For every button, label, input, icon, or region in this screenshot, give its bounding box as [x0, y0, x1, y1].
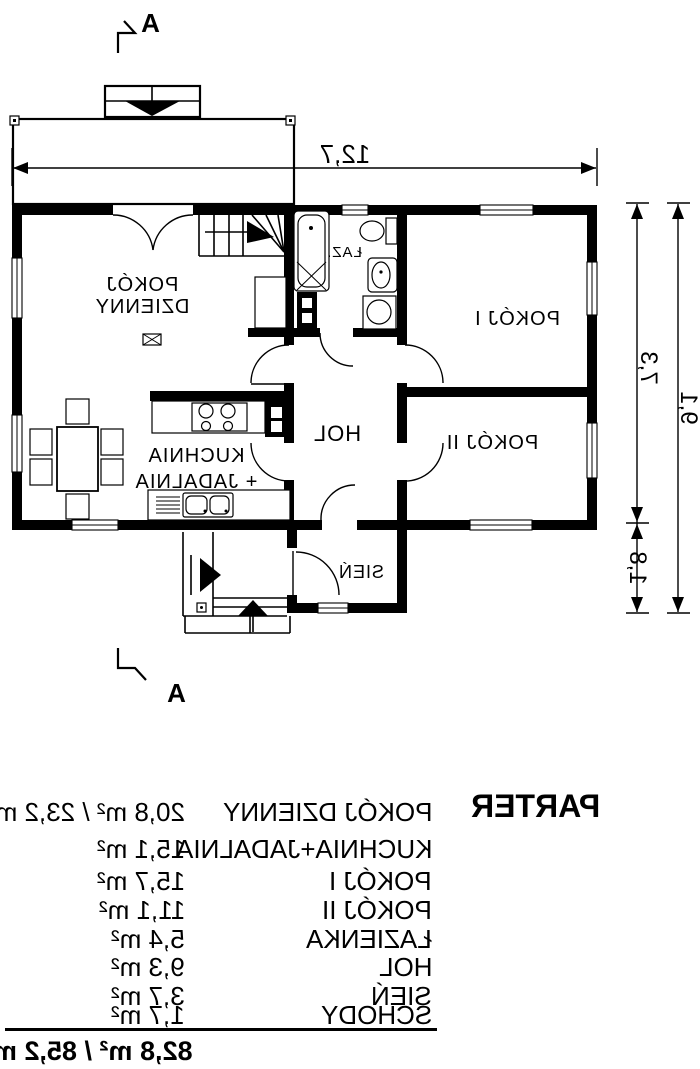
dim-width-text: 12,7 [320, 139, 371, 169]
wall [12, 205, 113, 215]
wall [287, 530, 297, 548]
legend-row-name: POKÓJ DZIENNY [223, 797, 432, 828]
wall [12, 205, 22, 258]
label-living-1: POKÓJ [106, 273, 179, 296]
floor-plan-svg: A 12,7 [0, 0, 700, 770]
legend-row-name: ŁAZIENKA [306, 924, 432, 955]
chair [66, 399, 89, 424]
wall [407, 387, 587, 397]
door-arc-sien-hol [321, 485, 355, 520]
french-door-arc [113, 215, 153, 250]
toilet-bowl [360, 221, 384, 241]
legend-row-name: HOL [379, 952, 432, 983]
wall [12, 318, 22, 415]
wall [150, 391, 294, 401]
dimension-width: 12,7 [12, 139, 597, 186]
legend-separator [5, 1028, 437, 1031]
section-marker-top: A [118, 8, 160, 53]
wall [397, 215, 407, 345]
label-hol: HOL [313, 421, 361, 446]
dim-height-total-text: 9,1 [675, 391, 700, 424]
wall [348, 603, 407, 613]
steps-arrow-up [238, 600, 268, 616]
stairs [199, 215, 284, 256]
legend-row-name: KUCHNIA+JADALNIA [176, 834, 432, 865]
wall [248, 328, 284, 337]
legend-row-value: 1,7 m² [111, 1000, 185, 1031]
chair [66, 494, 89, 519]
wall [587, 315, 597, 423]
wall [397, 383, 407, 443]
door-arc-room1 [405, 345, 443, 383]
chimney-symbol [105, 86, 200, 117]
label-kitchen-1: KUCHNIA [147, 445, 244, 467]
floorplan-page: A 12,7 [0, 0, 700, 1069]
chair [30, 429, 52, 455]
chair [101, 459, 123, 485]
wall [587, 205, 597, 262]
toilet-tank [386, 218, 397, 244]
dimension-heights: 7,3 1,8 9,1 [624, 203, 700, 613]
legend-total: 82,8 m² / 85,2 m² [0, 1036, 193, 1067]
dim-height-lower-text: 1,8 [624, 551, 651, 584]
door-arc-bath [320, 333, 353, 366]
label-kitchen-2: + JADALNIA [135, 471, 258, 493]
bathroom-fixtures [294, 211, 397, 330]
cabinet [255, 277, 286, 328]
legend-row-name: SCHODY [321, 1000, 432, 1031]
door-arc-entrance [296, 552, 339, 595]
dining-table [57, 427, 98, 491]
label-room1: POKÓJ I [474, 307, 560, 330]
wall [397, 530, 407, 613]
section-label-bottom: A [166, 678, 186, 708]
label-living-2: DZIENNY [95, 296, 190, 318]
legend-row-value: 15,1 m² [97, 834, 185, 865]
chair [101, 429, 123, 455]
legend-row-value: 11,1 m² [99, 895, 185, 926]
section-marker-bottom: A [118, 648, 186, 708]
legend-row-value: 15,7 m² [97, 866, 185, 897]
wall [12, 520, 72, 530]
entrance-porch [183, 532, 290, 633]
wall [287, 603, 318, 613]
wall [118, 520, 322, 530]
legend-row-value: 5,4 m² [111, 924, 185, 955]
terrace-outline [10, 116, 295, 204]
label-room2: POKÓJ II [446, 431, 538, 454]
legend-row-name: POKÓJ I [329, 866, 432, 897]
label-sien: SIEŃ [338, 562, 384, 582]
door-arc-living-hall [251, 345, 289, 383]
chair [30, 459, 52, 485]
dim-height-upper-text: 7,3 [635, 351, 662, 384]
door-arc-room2 [403, 443, 443, 481]
dining-set [30, 399, 123, 519]
wall [397, 480, 407, 520]
steps-arrow-right [200, 558, 221, 592]
legend-row-value: 9,3 m² [111, 952, 185, 983]
wall [532, 520, 597, 530]
legend-row-value: 20,8 m² / 23,2 m² [0, 797, 185, 828]
label-bath: ŁAZ. [326, 244, 362, 261]
wall [357, 520, 470, 530]
wall [368, 205, 480, 215]
section-label-top: A [140, 8, 160, 38]
legend-title: PARTER [471, 788, 600, 825]
legend-row-name: POKÓJ II [322, 895, 432, 926]
duct-shaft [297, 292, 317, 330]
french-door-arc [153, 215, 193, 250]
